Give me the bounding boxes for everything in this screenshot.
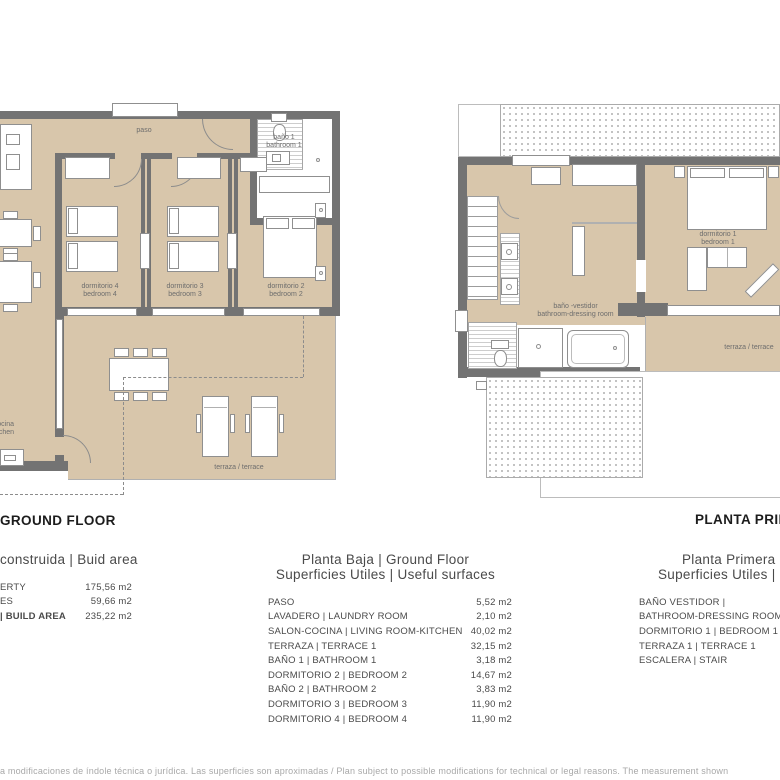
drain-tab-icon bbox=[476, 381, 487, 390]
row-label: SALON-COCINA | LIVING ROOM-KITCHEN bbox=[268, 626, 463, 637]
sink-unit-icon bbox=[4, 455, 16, 461]
room-label-line: bedroom 4 bbox=[70, 291, 130, 299]
chair-icon bbox=[33, 272, 41, 288]
table-row: BAÑO VESTIDOR | bbox=[639, 595, 780, 610]
pillow-icon bbox=[729, 168, 764, 178]
window-icon bbox=[56, 319, 63, 429]
closet-icon bbox=[259, 176, 330, 193]
chair-icon bbox=[133, 348, 148, 357]
room-label-line: dormitorio 1 bbox=[688, 231, 748, 239]
row-value: 235,22 m2 bbox=[85, 611, 132, 622]
kitchen-sink-icon bbox=[6, 134, 20, 145]
table-row: DORMITORIO 4 | BEDROOM 411,90 m2 bbox=[268, 712, 512, 727]
window-icon bbox=[455, 310, 468, 332]
room-label-line: bedroom 3 bbox=[155, 291, 215, 299]
patio-stipple bbox=[486, 377, 643, 478]
dining-table-icon bbox=[109, 358, 169, 391]
wall-segment bbox=[618, 303, 668, 316]
room-label-paso: paso bbox=[124, 127, 164, 135]
room-label-line: baño -vestidor bbox=[528, 303, 623, 311]
table-title: Planta Baja | Ground Floor bbox=[257, 552, 514, 567]
table-row: SALON-COCINA | LIVING ROOM-KITCHEN40,02 … bbox=[268, 624, 512, 639]
table-subtitle: Superficies Utiles | Useful surfaces bbox=[658, 567, 780, 582]
table-title: Planta Primera | First Floor bbox=[682, 552, 780, 567]
lounger-arm-icon bbox=[230, 414, 235, 433]
wall-segment bbox=[637, 165, 645, 317]
table-row: DORMITORIO 3 | BEDROOM 311,90 m2 bbox=[268, 697, 512, 712]
terrace-border bbox=[68, 479, 336, 480]
row-label: TERRAZA 1 | TERRACE 1 bbox=[639, 641, 756, 652]
wall-light-icon bbox=[319, 271, 323, 275]
pillow-icon bbox=[68, 208, 78, 234]
table-row: PASO5,52 m2 bbox=[268, 595, 512, 610]
closet-icon bbox=[572, 226, 585, 276]
table-row: DORMITORIO 1 | BEDROOM 1 bbox=[639, 624, 780, 639]
row-label: DORMITORIO 4 | BEDROOM 4 bbox=[268, 714, 407, 725]
row-label: DORMITORIO 3 | BEDROOM 3 bbox=[268, 699, 407, 710]
row-value: 11,90 m2 bbox=[471, 714, 512, 725]
room-label-bedroom4: dormitorio 4 bedroom 4 bbox=[70, 283, 130, 299]
row-label: ESCALERA | STAIR bbox=[639, 655, 727, 666]
room-label-line: living room-kitchen bbox=[0, 429, 14, 437]
row-label: ES bbox=[0, 596, 13, 607]
window-icon bbox=[67, 308, 137, 316]
desk-icon bbox=[727, 248, 728, 267]
sink-icon bbox=[506, 249, 512, 255]
room-label-line: bedroom 1 bbox=[688, 239, 748, 247]
row-value: 40,02 m2 bbox=[471, 626, 512, 637]
dining-table-icon bbox=[0, 261, 32, 303]
row-label: BAÑO VESTIDOR | bbox=[639, 597, 725, 608]
chair-icon bbox=[3, 253, 18, 261]
pillow-icon bbox=[169, 208, 179, 234]
room-label-line: dormitorio 3 bbox=[155, 283, 215, 291]
chair-icon bbox=[114, 392, 129, 401]
bathtub-drain-icon bbox=[613, 346, 617, 350]
row-label: DORMITORIO 1 | BEDROOM 1 bbox=[639, 626, 778, 637]
lounger-icon bbox=[251, 396, 278, 457]
chair-icon bbox=[33, 226, 41, 241]
room-label-bath-dressing: baño -vestidor bathroom-dressing room bbox=[528, 303, 623, 319]
table-row: TERRAZA 1 | TERRACE 1 bbox=[639, 639, 780, 654]
room-label-bedroom3: dormitorio 3 bedroom 3 bbox=[155, 283, 215, 299]
window-icon bbox=[112, 103, 178, 117]
shower-drain-icon bbox=[536, 344, 541, 349]
nightstand-icon bbox=[674, 166, 685, 178]
row-value: 2,10 m2 bbox=[476, 611, 512, 622]
table-header: construida | Buid area bbox=[0, 552, 132, 567]
room-label-line: bedroom 2 bbox=[256, 291, 316, 299]
room-label-line: baño 1 bbox=[252, 134, 316, 142]
row-value: 32,15 m2 bbox=[471, 641, 512, 652]
toilet-icon bbox=[494, 350, 507, 367]
room-label-terrace1: terraza / terrace bbox=[719, 344, 779, 352]
wall-segment bbox=[332, 111, 340, 315]
terrace-border bbox=[645, 317, 646, 372]
counter-line bbox=[572, 222, 637, 224]
page-canvas: paso baño 1 bathroom 1 dormitorio 4 bedr… bbox=[0, 0, 780, 780]
lounger-icon bbox=[202, 396, 229, 457]
row-value: 175,56 m2 bbox=[85, 582, 132, 593]
chair-icon bbox=[133, 392, 148, 401]
table-row: ESCALERA | STAIR bbox=[639, 653, 780, 668]
window-icon bbox=[152, 308, 225, 316]
table-row: DORMITORIO 2 | BEDROOM 214,67 m2 bbox=[268, 668, 512, 683]
wall-segment bbox=[55, 153, 62, 315]
room-label-line: bathroom-dressing room bbox=[528, 311, 623, 319]
sliding-door-icon bbox=[227, 233, 237, 269]
row-label: BAÑO 2 | BATHROOM 2 bbox=[268, 684, 377, 695]
pergola-stipple bbox=[500, 104, 780, 157]
chair-icon bbox=[114, 348, 129, 357]
sink-icon bbox=[272, 154, 281, 162]
row-label: ERTY bbox=[0, 582, 26, 593]
bathtub-icon bbox=[571, 334, 625, 364]
roof-outline bbox=[458, 104, 505, 157]
terrace-border bbox=[335, 315, 336, 480]
table-row: BAÑO 2 | BATHROOM 23,83 m2 bbox=[268, 683, 512, 698]
row-value: 11,90 m2 bbox=[471, 699, 512, 710]
room-label-bedroom1: dormitorio 1 bedroom 1 bbox=[688, 231, 748, 247]
dashed-boundary bbox=[0, 494, 123, 495]
room-label-bath1: baño 1 bathroom 1 bbox=[252, 134, 316, 150]
toilet-icon bbox=[271, 113, 287, 122]
table-row: ERTY175,56 m2 bbox=[0, 580, 132, 595]
door-opening bbox=[636, 260, 646, 292]
wall-light-icon bbox=[319, 208, 323, 212]
row-label: | BUILD AREA bbox=[0, 611, 66, 622]
pillow-icon bbox=[292, 218, 315, 229]
dashed-boundary bbox=[123, 377, 124, 495]
room-label-kitchen: salón-cocina living room-kitchen bbox=[0, 421, 14, 437]
wall-segment bbox=[141, 153, 172, 159]
closet-icon bbox=[177, 157, 221, 179]
stairs-icon bbox=[467, 196, 498, 300]
table-rows: ERTY175,56 m2ES59,66 m2| BUILD AREA235,2… bbox=[0, 580, 132, 624]
dashed-boundary bbox=[123, 377, 303, 378]
chair-icon bbox=[3, 304, 18, 312]
sliding-door-icon bbox=[140, 233, 150, 269]
window-icon bbox=[243, 308, 320, 316]
room-label-line: dormitorio 2 bbox=[256, 283, 316, 291]
planta-baja-table: Planta Baja | Ground Floor Superficies U… bbox=[257, 552, 514, 726]
room-label-line: salón-cocina bbox=[0, 421, 14, 429]
closet-icon bbox=[572, 164, 637, 186]
wall-segment bbox=[458, 157, 467, 378]
closet-icon bbox=[531, 167, 561, 185]
closet-icon bbox=[65, 157, 110, 179]
table-subtitle: Superficies Utiles | Useful surfaces bbox=[257, 567, 514, 582]
lounger-icon bbox=[253, 407, 276, 408]
row-label: PASO bbox=[268, 597, 295, 608]
row-value: 59,66 m2 bbox=[91, 596, 132, 607]
chair-icon bbox=[152, 392, 167, 401]
table-row: BATHROOM-DRESSING ROOM bbox=[639, 610, 780, 625]
table-rows: PASO5,52 m2LAVADERO | LAUNDRY ROOM2,10 m… bbox=[257, 595, 514, 726]
table-rows: BAÑO VESTIDOR |BATHROOM-DRESSING ROOMDOR… bbox=[639, 595, 780, 668]
window-icon bbox=[512, 155, 570, 166]
row-value: 3,18 m2 bbox=[476, 655, 512, 666]
chair-icon bbox=[3, 211, 18, 219]
first-floor-title: PLANTA PRIMERA bbox=[695, 512, 780, 527]
lounger-arm-icon bbox=[196, 414, 201, 433]
pillow-icon bbox=[68, 243, 78, 269]
pillow-icon bbox=[266, 218, 289, 229]
row-value: 3,83 m2 bbox=[476, 684, 512, 695]
row-label: LAVADERO | LAUNDRY ROOM bbox=[268, 611, 408, 622]
row-label: DORMITORIO 2 | BEDROOM 2 bbox=[268, 670, 407, 681]
disclaimer-text: a modificaciones de índole técnica o jur… bbox=[0, 766, 728, 776]
dining-table-icon bbox=[0, 219, 32, 247]
pillow-icon bbox=[169, 243, 179, 269]
pillow-icon bbox=[690, 168, 725, 178]
room-label-terrace: terraza / terrace bbox=[209, 464, 269, 472]
nightstand-icon bbox=[768, 166, 779, 178]
room-label-line: bathroom 1 bbox=[252, 142, 316, 150]
row-value: 14,67 m2 bbox=[471, 670, 512, 681]
table-row: TERRAZA | TERRACE 132,15 m2 bbox=[268, 639, 512, 654]
row-label: BATHROOM-DRESSING ROOM bbox=[639, 611, 780, 622]
lounger-icon bbox=[204, 407, 227, 408]
desk-icon bbox=[687, 247, 707, 291]
chair-icon bbox=[152, 348, 167, 357]
kitchen-hob-icon bbox=[6, 154, 20, 170]
closet-icon bbox=[240, 157, 267, 172]
toilet-icon bbox=[491, 340, 509, 349]
planta-primera-table: Planta Primera | First Floor Superficies… bbox=[639, 552, 780, 668]
lounger-arm-icon bbox=[245, 414, 250, 433]
lounger-arm-icon bbox=[279, 414, 284, 433]
table-row: ES59,66 m2 bbox=[0, 595, 132, 610]
dashed-boundary bbox=[303, 316, 304, 377]
room-label-bedroom2: dormitorio 2 bedroom 2 bbox=[256, 283, 316, 299]
build-area-table: construida | Buid area ERTY175,56 m2ES59… bbox=[0, 552, 132, 624]
row-value: 5,52 m2 bbox=[476, 597, 512, 608]
wall-light-icon bbox=[316, 158, 320, 162]
table-row: BAÑO 1 | BATHROOM 13,18 m2 bbox=[268, 653, 512, 668]
table-row: | BUILD AREA235,22 m2 bbox=[0, 609, 132, 624]
window-icon bbox=[667, 305, 780, 316]
row-label: TERRAZA | TERRACE 1 bbox=[268, 641, 377, 652]
table-row: LAVADERO | LAUNDRY ROOM2,10 m2 bbox=[268, 610, 512, 625]
row-label: BAÑO 1 | BATHROOM 1 bbox=[268, 655, 377, 666]
ground-floor-title: GROUND FLOOR bbox=[0, 513, 116, 528]
sink-icon bbox=[506, 284, 512, 290]
room-label-line: dormitorio 4 bbox=[70, 283, 130, 291]
